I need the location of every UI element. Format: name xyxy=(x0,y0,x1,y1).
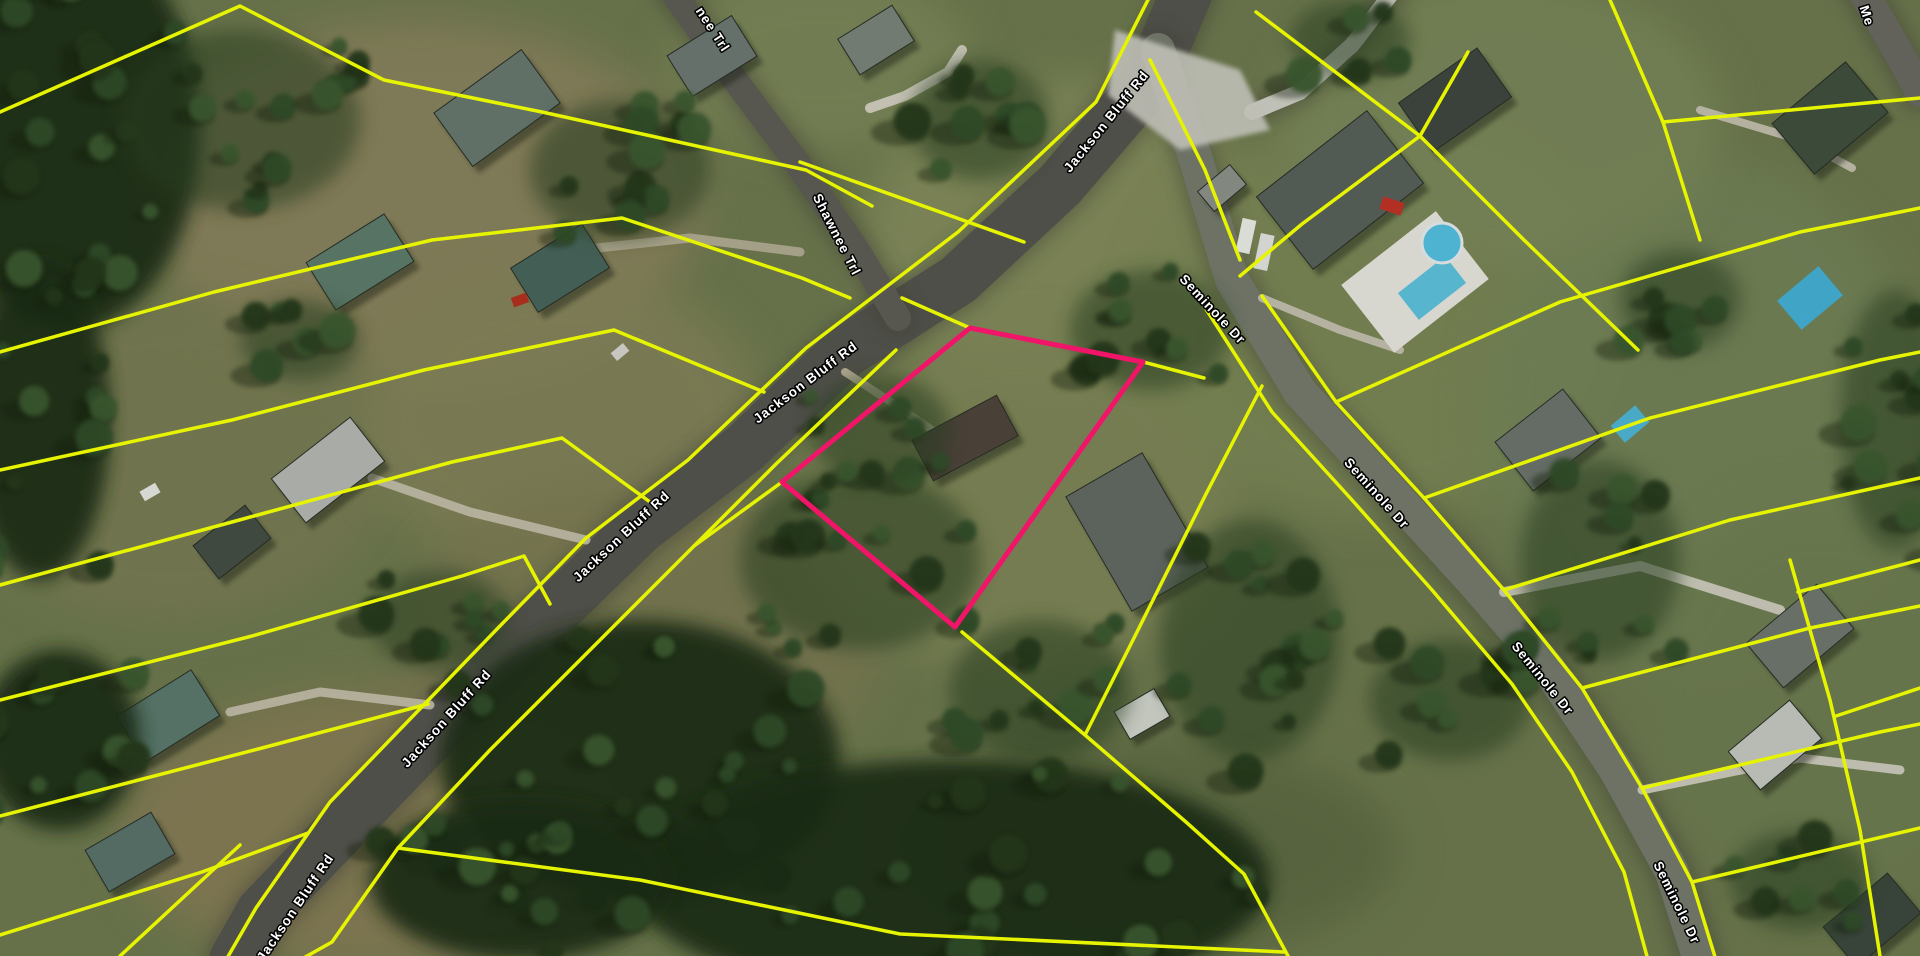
photo-grain xyxy=(0,0,1920,956)
map-viewport[interactable]: Jackson Bluff Rdnee TrlShawnee TrlJackso… xyxy=(0,0,1920,956)
aerial-map[interactable]: Jackson Bluff Rdnee TrlShawnee TrlJackso… xyxy=(0,0,1920,956)
